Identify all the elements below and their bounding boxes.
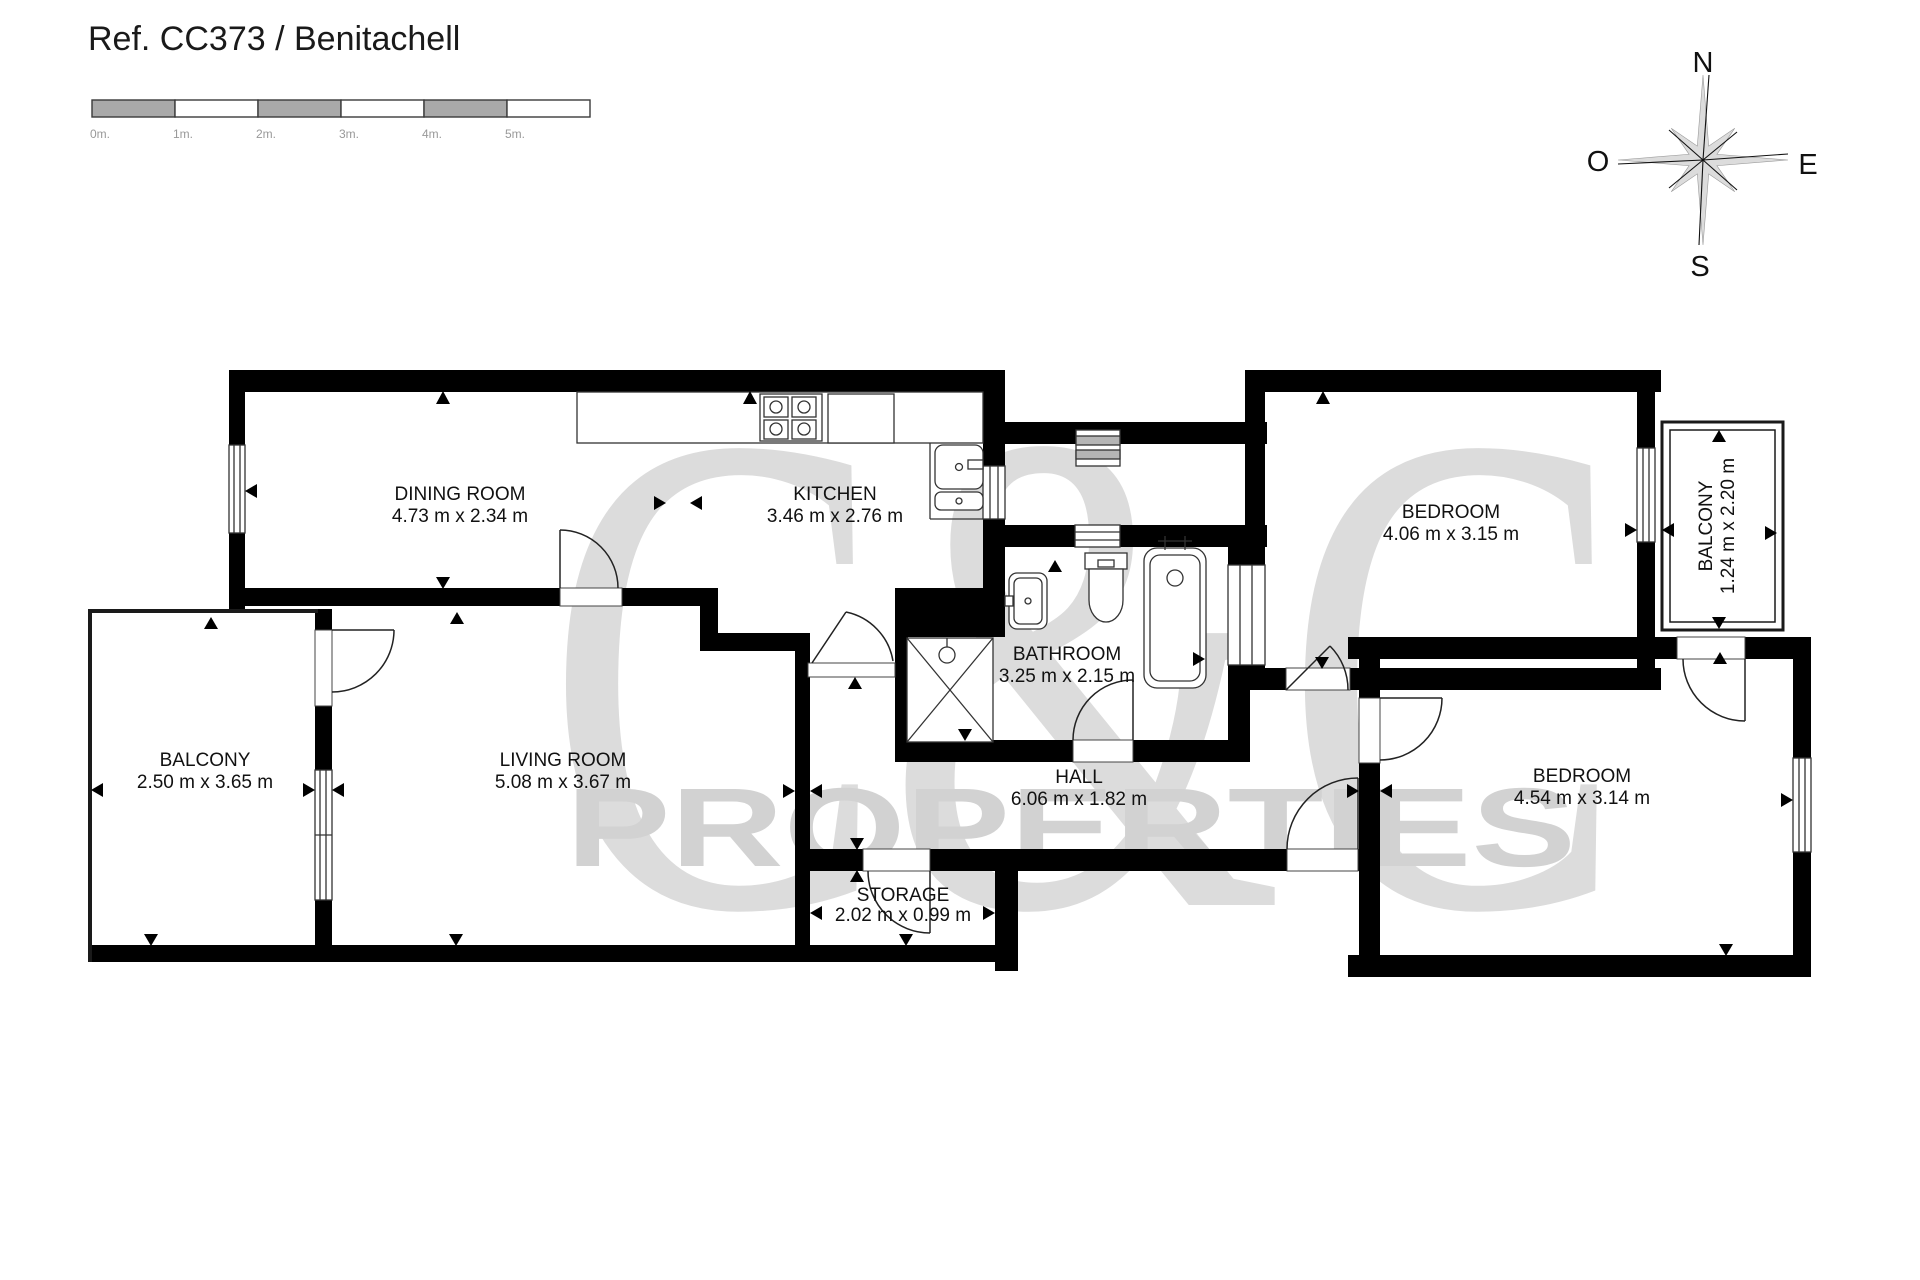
door-threshold [1677,637,1745,659]
wall-segment [983,525,1075,547]
wall-segment [983,370,1005,466]
scale-segment [175,100,258,117]
wall-segment [88,609,92,962]
scale-label: 1m. [173,127,193,141]
wall-segment [315,706,332,770]
room-dims: 4.54 m x 3.14 m [1514,788,1650,809]
room-name: BALCONY [1696,480,1717,571]
wall-segment [895,637,908,754]
wall-segment [88,945,1018,962]
wall-segment [983,422,1267,444]
window [1075,525,1120,547]
room-label-living-room: LIVING ROOM 5.08 m x 3.67 m [495,750,631,793]
room-label-bathroom: BATHROOM 3.25 m x 2.15 m [999,644,1135,687]
page-title: Ref. CC373 / Benitachell [88,20,460,58]
door-threshold [1359,698,1380,763]
wall-segment [229,588,560,606]
room-label-bedroom-1: BEDROOM 4.06 m x 3.15 m [1383,502,1519,545]
scale-label: 4m. [422,127,442,141]
wall-segment [1359,637,1380,698]
door-threshold [808,663,895,677]
room-name: BEDROOM [1533,766,1631,787]
wall-segment [795,633,810,955]
door-threshold [1286,668,1350,690]
shower-icon [907,638,993,742]
wall-segment [983,547,1005,588]
window [1228,565,1265,665]
wall-segment [1637,370,1655,448]
room-dims: 3.46 m x 2.76 m [767,506,903,527]
room-dims: 5.08 m x 3.67 m [495,772,631,793]
compass-south-label: S [1690,251,1709,283]
washing-machine-icon [1076,430,1120,466]
window [229,445,245,533]
floorplan-page: Ref. CC373 / Benitachell 0m. 1m. 2m. 3m.… [0,0,1920,1280]
room-label-dining-room: DINING ROOM 4.73 m x 2.34 m [392,484,528,527]
compass-east-label: E [1798,149,1817,181]
window [1793,758,1811,852]
wall-segment [1793,637,1811,758]
compass-north-label: N [1693,47,1714,79]
wall-segment [1245,370,1661,392]
room-dims: 2.50 m x 3.65 m [137,772,273,793]
washbasin-icon [1005,573,1047,629]
window [1637,448,1655,542]
room-name: BALCONY [160,750,251,771]
door-threshold [1287,849,1358,871]
wall-segment [1348,637,1677,659]
scale-segment [424,100,507,117]
wall-segment [1358,849,1380,871]
stove-icon [760,394,822,441]
room-dims: 3.25 m x 2.15 m [999,666,1135,687]
scale-label: 0m. [90,127,110,141]
floorplan-canvas: Ref. CC373 / Benitachell 0m. 1m. 2m. 3m.… [0,0,1920,1280]
scale-segment [92,100,175,117]
wall-segment [930,849,1287,871]
door-threshold [315,630,332,706]
room-dims: 4.73 m x 2.34 m [392,506,528,527]
door-threshold [863,849,930,871]
scale-label: 5m. [505,127,525,141]
wall-segment [795,849,863,871]
scale-segment [507,100,590,117]
compass-west-label: O [1587,146,1610,178]
wall-segment [700,633,808,651]
wall-segment [1350,668,1661,690]
compass-rose-icon: N S O E [1587,47,1818,283]
scale-segment [258,100,341,117]
wall-segment [1245,370,1265,565]
room-name: BATHROOM [1013,644,1121,665]
room-dims: 2.02 m x 0.99 m [835,905,971,926]
room-name: LIVING ROOM [500,750,627,771]
room-dims: 6.06 m x 1.82 m [1011,789,1147,810]
window [315,770,332,900]
wall-segment [1348,955,1811,977]
room-dims: 4.06 m x 3.15 m [1383,524,1519,545]
wall-segment [88,609,318,613]
room-name: STORAGE [857,885,950,906]
room-name: DINING ROOM [395,484,526,505]
bathtub-icon [1144,536,1206,688]
toilet-icon [1085,553,1127,622]
room-label-bedroom-2: BEDROOM 4.54 m x 3.14 m [1514,766,1650,809]
door-threshold [1073,740,1133,762]
wall-segment [1245,668,1286,690]
room-dims: 1.24 m x 2.20 m [1718,458,1739,594]
room-name: HALL [1055,767,1103,788]
refrigerator-icon [828,394,894,443]
window [983,466,1005,519]
wall-segment [895,740,1073,762]
scale-label: 3m. [339,127,359,141]
scale-segment [341,100,424,117]
wall-segment [1637,542,1655,690]
wall-segment [895,588,1005,637]
scale-label: 2m. [256,127,276,141]
kitchen-sink-icon [935,445,983,510]
room-name: KITCHEN [793,484,876,505]
room-name: BEDROOM [1402,502,1500,523]
door-threshold [560,588,622,606]
scale-bar: 0m. 1m. 2m. 3m. 4m. 5m. [90,100,590,141]
wall-segment [315,900,332,962]
wall-segment [229,370,1005,392]
